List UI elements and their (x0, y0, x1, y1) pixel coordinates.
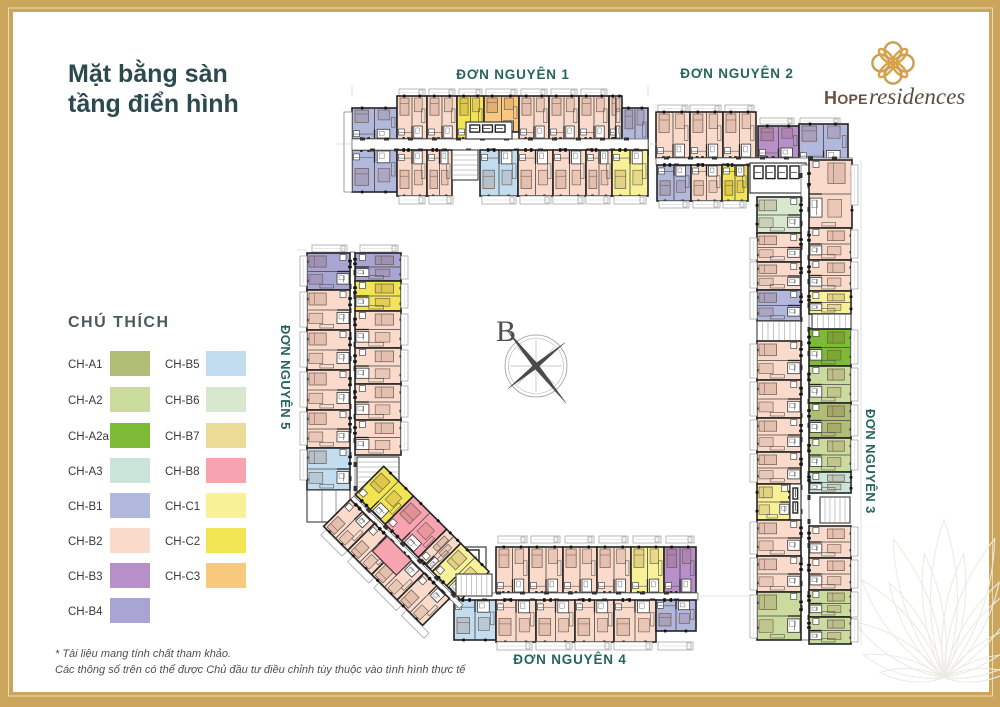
svg-text:CH-A2: CH-A2 (68, 395, 103, 407)
svg-text:ĐƠN NGUYÊN 1: ĐƠN NGUYÊN 1 (456, 67, 569, 82)
svg-text:ĐƠN NGUYÊN 5: ĐƠN NGUYÊN 5 (278, 325, 293, 430)
svg-text:CH-B2: CH-B2 (68, 536, 103, 548)
svg-text:CH-A3: CH-A3 (68, 466, 103, 478)
svg-text:CH-B1: CH-B1 (68, 501, 103, 513)
svg-text:CH-C3: CH-C3 (165, 571, 200, 583)
svg-text:B: B (496, 315, 516, 348)
svg-text:CH-C1: CH-C1 (165, 501, 200, 513)
svg-text:CH-B8: CH-B8 (165, 466, 200, 478)
svg-text:HOPE: HOPE (824, 88, 868, 108)
svg-text:* Tài liệu mang tính chất tham: * Tài liệu mang tính chất tham khảo. (55, 648, 231, 660)
svg-text:CH-B6: CH-B6 (165, 395, 200, 407)
svg-text:tầng điển hình: tầng điển hình (68, 90, 239, 118)
svg-text:ĐƠN NGUYÊN 3: ĐƠN NGUYÊN 3 (863, 409, 878, 514)
svg-text:CH-B5: CH-B5 (165, 359, 200, 371)
svg-text:Các thông số trên có thể được: Các thông số trên có thể được Chủ đầu tư… (55, 664, 466, 676)
svg-text:CH-A2a: CH-A2a (68, 431, 110, 443)
svg-text:ĐƠN NGUYÊN 4: ĐƠN NGUYÊN 4 (513, 652, 626, 667)
svg-text:CHÚ THÍCH: CHÚ THÍCH (68, 312, 170, 331)
svg-text:ĐƠN NGUYÊN 2: ĐƠN NGUYÊN 2 (680, 66, 793, 81)
svg-text:residences: residences (869, 84, 965, 109)
svg-text:CH-C2: CH-C2 (165, 536, 200, 548)
svg-text:CH-B3: CH-B3 (68, 571, 103, 583)
svg-text:CH-B7: CH-B7 (165, 431, 200, 443)
svg-text:CH-A1: CH-A1 (68, 359, 103, 371)
svg-text:Mặt bằng sàn: Mặt bằng sàn (68, 58, 228, 88)
svg-text:CH-B4: CH-B4 (68, 606, 103, 618)
